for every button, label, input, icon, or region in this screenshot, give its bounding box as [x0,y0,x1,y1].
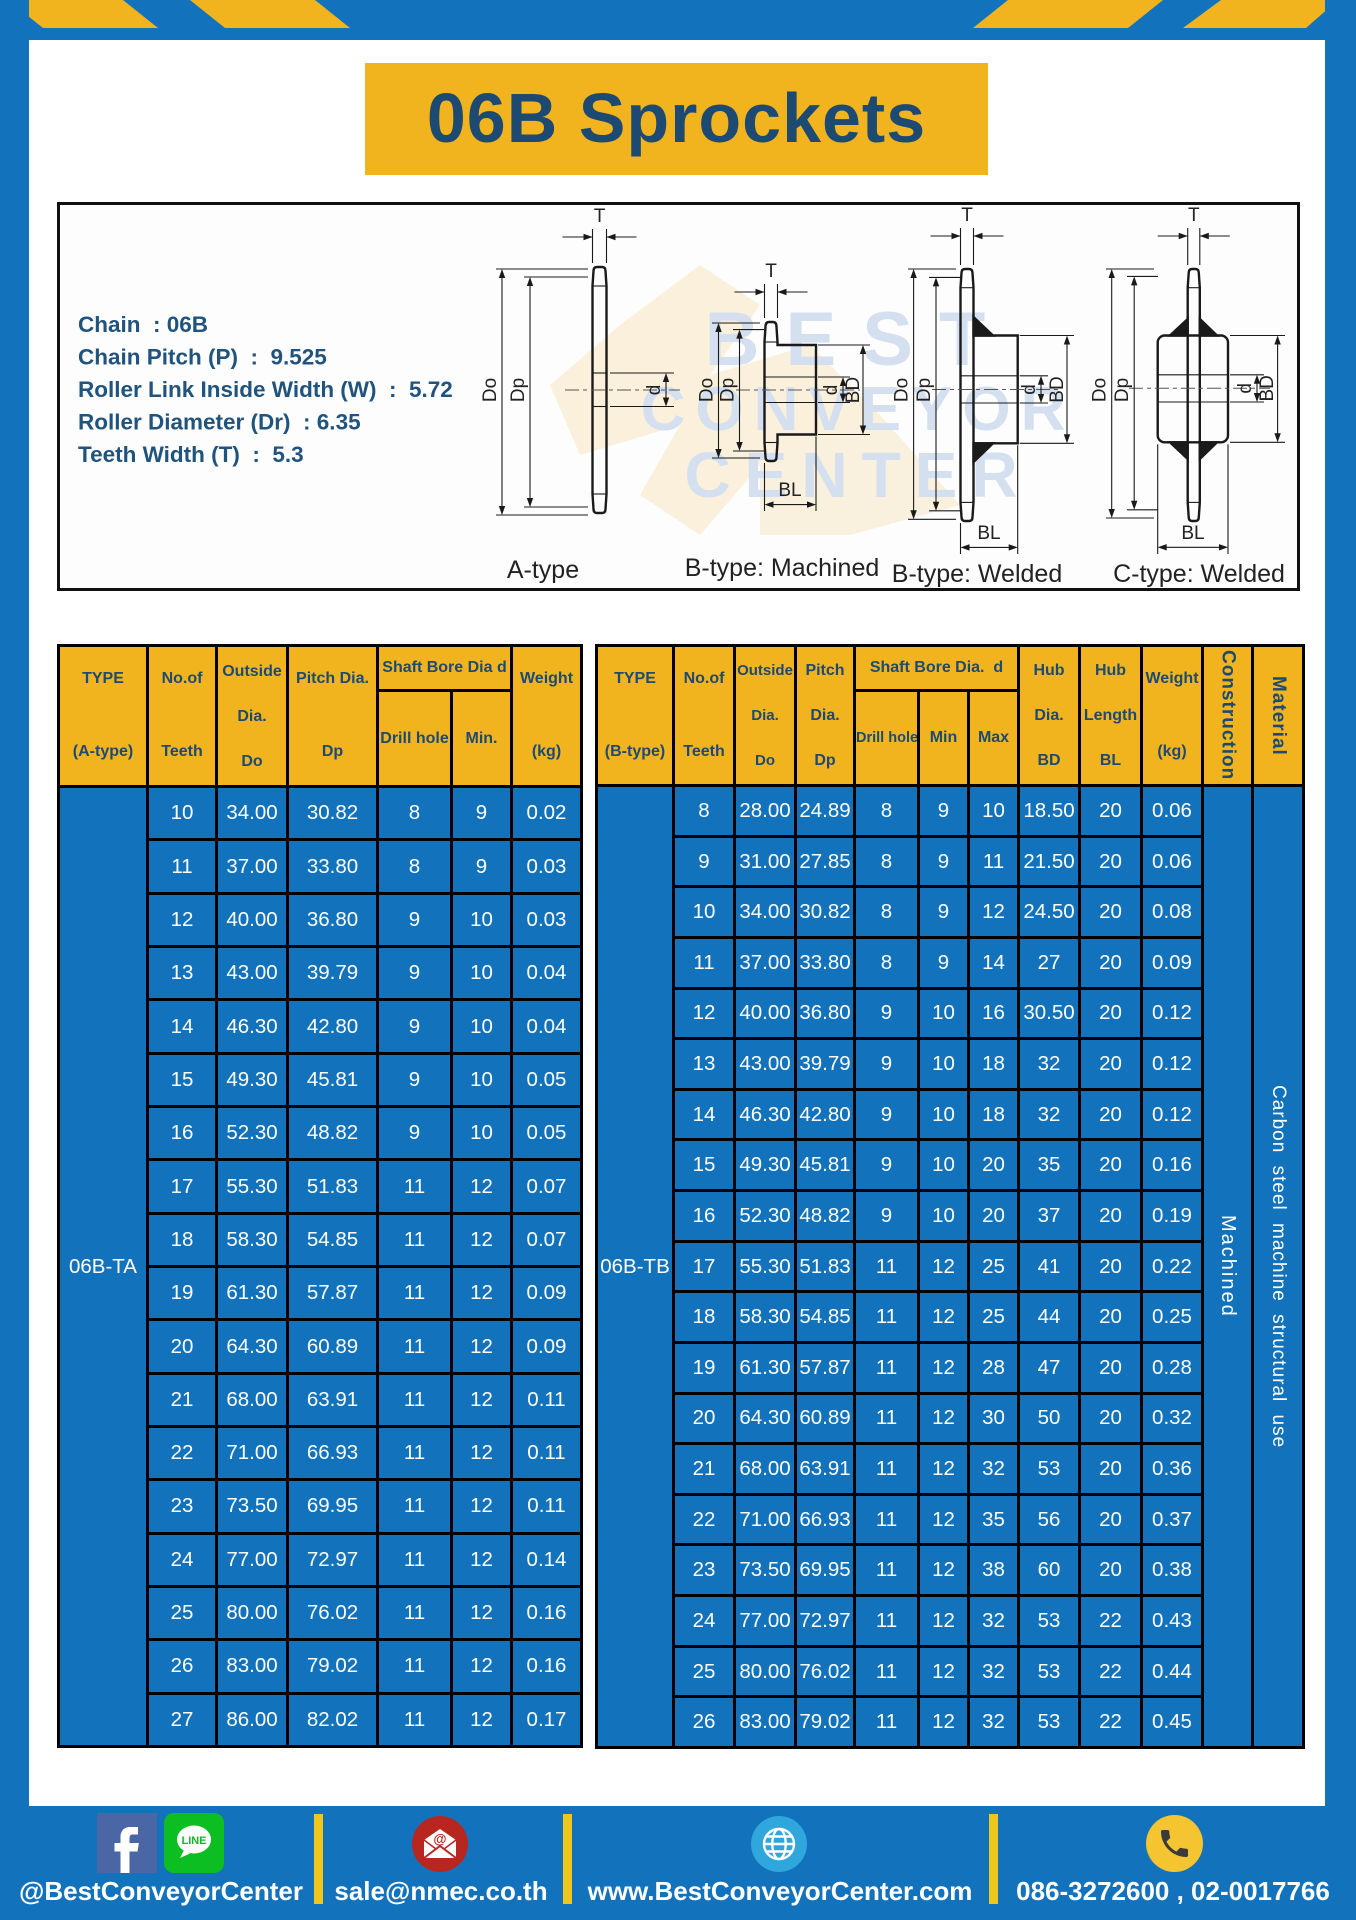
svg-text:T: T [961,205,973,226]
svg-text:T: T [594,206,606,227]
svg-text:Do: Do [1090,378,1111,402]
svg-text:Chain Pitch (P) : 9.525: Chain Pitch (P) : 9.525 [78,345,327,370]
svg-text:BL: BL [778,480,801,501]
svg-text:BL: BL [1181,523,1204,544]
svg-text:d: d [821,385,842,396]
svg-text:B-type: Machined: B-type: Machined [685,554,880,582]
svg-text:BD: BD [843,377,864,403]
svg-text:LINE: LINE [181,1835,206,1847]
svg-text:Roller Diameter (Dr) : 6.35: Roller Diameter (Dr) : 6.35 [78,410,361,435]
svg-text:@: @ [433,1832,446,1847]
svg-text:Teeth Width (T) : 5.3: Teeth Width (T) : 5.3 [78,442,304,467]
svg-text:Dp: Dp [914,378,935,402]
svg-text:Do: Do [480,378,501,402]
svg-text:T: T [1188,205,1200,226]
svg-text:T: T [765,261,777,282]
svg-text:C-type: Welded: C-type: Welded [1113,560,1285,588]
svg-text:B-type: Welded: B-type: Welded [892,560,1062,588]
svg-text:BEST: BEST [705,297,1012,382]
svg-text:d: d [1235,383,1256,394]
svg-text:BL: BL [977,523,1000,544]
svg-text:BD: BD [1257,375,1278,401]
svg-text:Dp: Dp [718,378,739,402]
svg-text:Do: Do [697,378,718,402]
svg-text:BD: BD [1047,376,1068,402]
svg-text:A-type: A-type [507,556,579,584]
svg-text:Chain : 06B: Chain : 06B [78,312,208,337]
svg-text:Dp: Dp [508,378,529,402]
svg-text:Do: Do [892,378,913,402]
svg-text:Roller Link Inside Width (W): Roller Link Inside Width (W) : 5.72 [78,377,453,402]
svg-text:d: d [644,385,665,396]
svg-text:Dp: Dp [1112,378,1133,402]
svg-text:d: d [1019,384,1040,395]
